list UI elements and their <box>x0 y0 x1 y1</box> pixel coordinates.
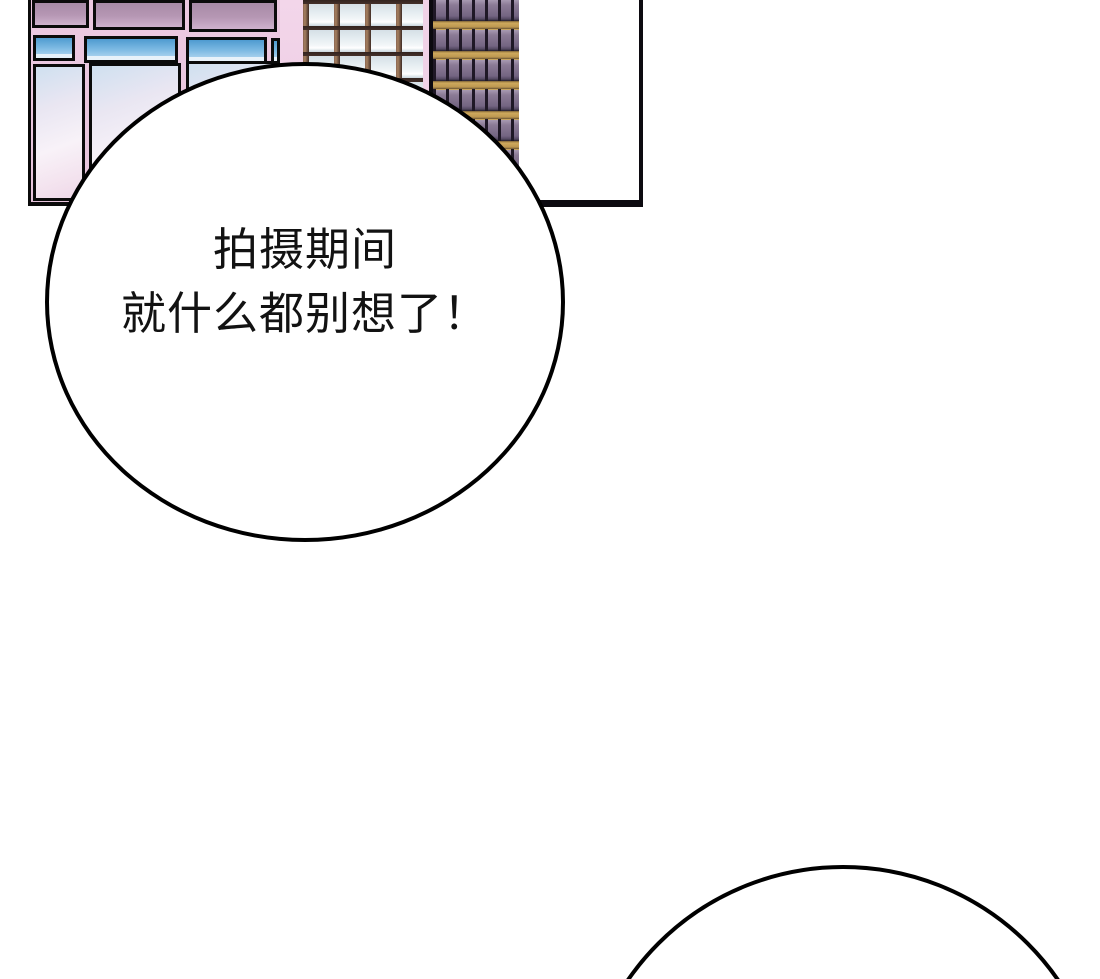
window-blue <box>33 35 75 61</box>
facade-panel <box>93 0 185 30</box>
speech-line-2: 就什么都别想了！ <box>45 282 565 346</box>
comic-page: 拍摄期间 就什么都别想了！ <box>0 0 1100 979</box>
window-tall <box>33 64 85 201</box>
window-blue <box>186 37 267 64</box>
building-gold-lattice <box>519 0 643 207</box>
window-blue <box>84 36 178 63</box>
speech-text: 拍摄期间 就什么都别想了！ <box>45 218 565 346</box>
facade-panel <box>189 0 277 32</box>
speech-line-1: 拍摄期间 <box>45 218 565 282</box>
facade-panel <box>32 0 89 28</box>
